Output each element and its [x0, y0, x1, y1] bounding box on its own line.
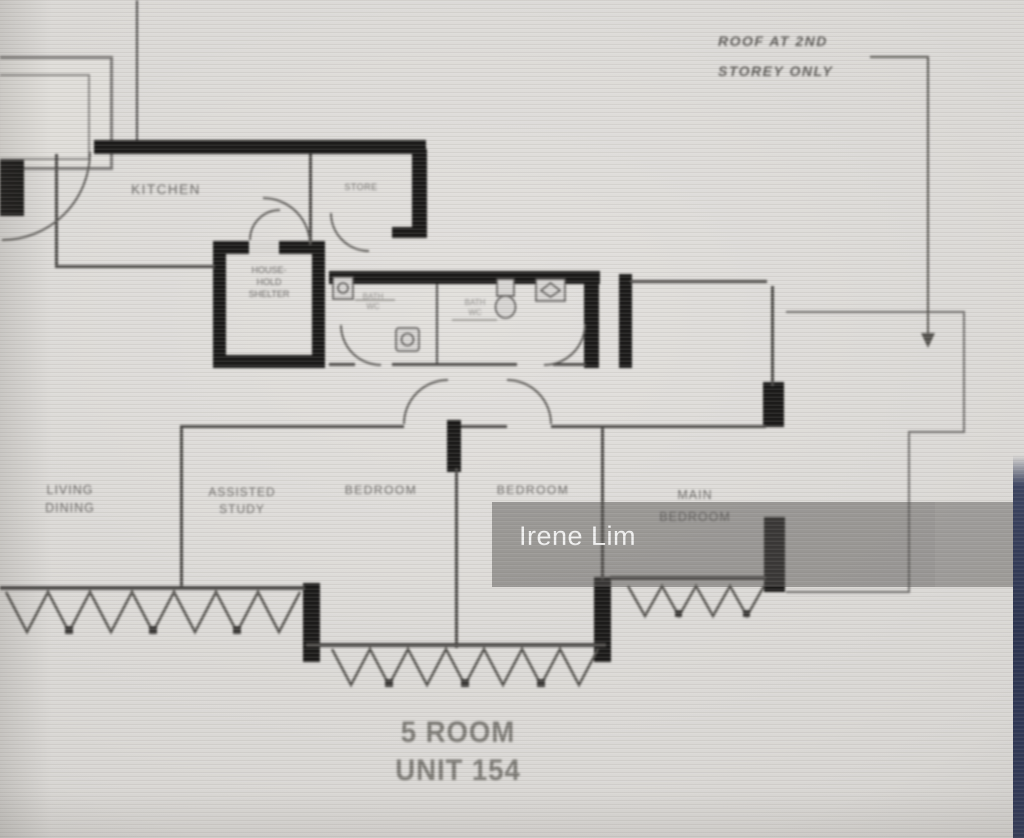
window-post [675, 610, 682, 617]
photo-edge-strip [1013, 455, 1024, 838]
door-arc [263, 198, 310, 245]
door-arc [331, 213, 369, 251]
shelter-label-line: HOUSE- [227, 264, 311, 276]
window-post [65, 626, 73, 634]
toilet-icon [396, 328, 419, 351]
bedroom2-label: BEDROOM [485, 483, 581, 497]
window-post [537, 679, 545, 687]
sink-icon [333, 277, 353, 299]
study-label: ASSISTED STUDY [190, 484, 294, 518]
living-label-line: DINING [26, 499, 114, 517]
plan-title-line1: 5 ROOM [348, 714, 569, 752]
study-label-line: STUDY [190, 501, 294, 518]
door-arc [250, 210, 280, 240]
photo-layer: KITCHEN STORE HOUSE- HOLD SHELTER BATH W… [0, 0, 1024, 838]
kitchen-label: KITCHEN [123, 182, 209, 197]
watermark-band-seam [935, 502, 1024, 587]
floorplan-photo: KITCHEN STORE HOUSE- HOLD SHELTER BATH W… [0, 0, 1024, 838]
door-arc [404, 380, 448, 424]
bath-label-line: WC [452, 308, 498, 318]
door-arc [2, 152, 90, 240]
plan-title-line2: UNIT 154 [348, 752, 569, 790]
bath-label-line: WC [352, 302, 394, 312]
annotation-line: ROOF AT 2ND [718, 26, 898, 56]
shelter-label-line: HOLD [227, 276, 311, 288]
door-arc [507, 380, 551, 424]
window-post [233, 626, 241, 634]
window-post [385, 679, 393, 687]
living-label-line: LIVING [26, 481, 114, 499]
roof-annotation: ROOF AT 2ND STOREY ONLY [718, 26, 898, 86]
window-post [461, 679, 469, 687]
living-dining-label: LIVING DINING [26, 481, 114, 517]
toilet-icon [497, 279, 514, 296]
bath1-label: BATH WC [352, 292, 394, 312]
shelter-label-line: SHELTER [227, 288, 311, 300]
window-post [743, 610, 750, 617]
plan-title: 5 ROOM UNIT 154 [348, 714, 569, 790]
household-shelter-label: HOUSE- HOLD SHELTER [227, 264, 311, 300]
bath-label-line: BATH [352, 292, 394, 302]
bedroom1-label: BEDROOM [334, 483, 428, 497]
door-arc [341, 325, 381, 365]
leader-line [870, 57, 928, 336]
watermark: Irene Lim [519, 520, 636, 552]
plan-linework [0, 0, 1024, 838]
window-post [149, 626, 157, 634]
bath-label-line: BATH [452, 298, 498, 308]
study-label-line: ASSISTED [190, 484, 294, 501]
door-arc [544, 324, 585, 365]
leader-arrow-icon [921, 333, 935, 348]
store-label: STORE [329, 182, 393, 192]
annotation-line: STOREY ONLY [718, 56, 898, 86]
bath2-label: BATH WC [452, 298, 498, 318]
toilet-bowl-icon [496, 296, 516, 318]
